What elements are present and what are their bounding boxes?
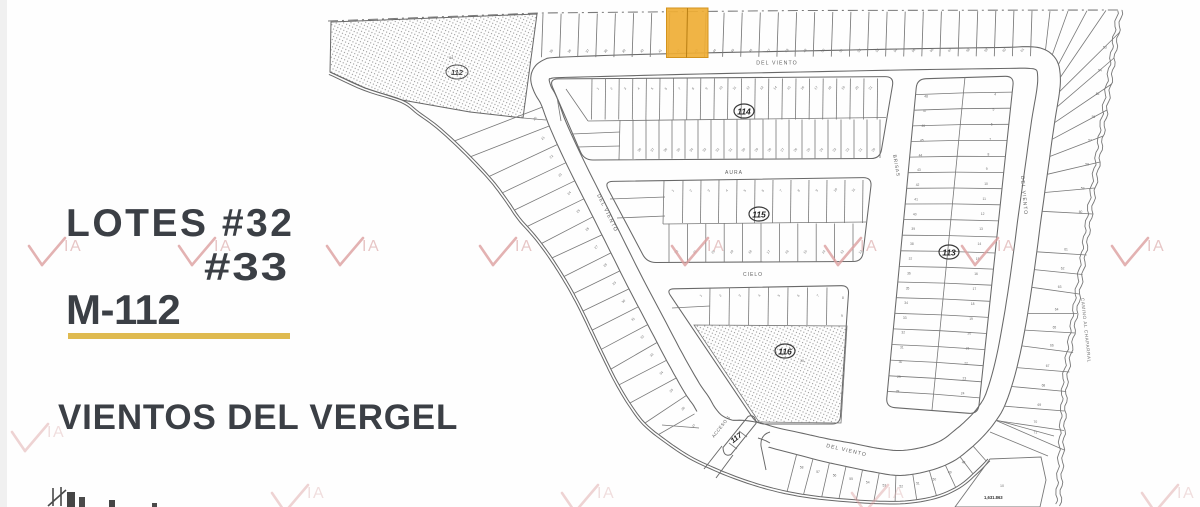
- svg-text:25: 25: [576, 208, 582, 214]
- svg-text:66: 66: [1050, 344, 1054, 348]
- svg-text:13: 13: [759, 85, 765, 91]
- svg-text:17: 17: [973, 287, 977, 291]
- svg-text:55: 55: [849, 477, 853, 481]
- svg-text:34: 34: [689, 147, 695, 153]
- svg-text:8: 8: [691, 87, 695, 91]
- svg-text:115: 115: [752, 210, 766, 220]
- svg-text:53: 53: [875, 48, 881, 54]
- svg-text:21: 21: [858, 147, 864, 153]
- svg-text:50: 50: [820, 48, 826, 54]
- svg-text:15: 15: [803, 249, 809, 255]
- svg-text:9: 9: [815, 189, 819, 193]
- svg-text:32: 32: [640, 334, 646, 340]
- svg-text:42: 42: [916, 183, 920, 187]
- svg-text:49: 49: [948, 470, 952, 474]
- svg-text:68: 68: [1042, 383, 1046, 387]
- svg-text:4: 4: [757, 294, 761, 298]
- svg-text:37: 37: [650, 147, 656, 153]
- svg-text:46: 46: [748, 48, 754, 54]
- svg-text:112: 112: [451, 68, 464, 77]
- svg-text:21: 21: [540, 135, 546, 141]
- svg-text:59: 59: [1081, 186, 1085, 190]
- svg-text:26: 26: [793, 147, 799, 153]
- svg-text:39: 39: [911, 227, 915, 231]
- svg-text:7: 7: [989, 137, 991, 141]
- svg-text:9: 9: [705, 87, 709, 91]
- svg-text:54: 54: [893, 48, 899, 54]
- svg-text:19: 19: [729, 249, 735, 255]
- svg-text:15: 15: [786, 85, 792, 91]
- svg-text:14: 14: [773, 85, 779, 91]
- svg-text:10: 10: [1000, 484, 1004, 488]
- svg-text:61: 61: [1020, 47, 1026, 53]
- svg-text:50: 50: [933, 477, 937, 481]
- svg-text:114: 114: [737, 107, 751, 117]
- svg-text:11: 11: [983, 197, 987, 201]
- svg-text:IA: IA: [597, 485, 615, 502]
- svg-text:38: 38: [603, 48, 609, 54]
- svg-text:DEL VIENTO: DEL VIENTO: [1019, 176, 1028, 216]
- svg-text:2: 2: [609, 87, 613, 91]
- svg-text:14: 14: [978, 242, 982, 246]
- svg-text:51: 51: [839, 48, 845, 54]
- svg-text:2: 2: [718, 294, 722, 298]
- svg-text:10: 10: [800, 359, 804, 363]
- svg-text:18: 18: [971, 302, 975, 306]
- svg-text:16: 16: [784, 249, 790, 255]
- svg-text:IA: IA: [1147, 238, 1165, 255]
- svg-text:26: 26: [585, 226, 591, 232]
- svg-text:6: 6: [761, 189, 765, 193]
- svg-text:7: 7: [816, 294, 820, 298]
- svg-text:4: 4: [637, 87, 641, 91]
- svg-text:28: 28: [603, 262, 609, 268]
- svg-text:69: 69: [1038, 403, 1042, 407]
- svg-text:113: 113: [942, 248, 956, 258]
- svg-text:8: 8: [842, 296, 844, 300]
- svg-text:84: 84: [449, 56, 453, 60]
- svg-text:67: 67: [1046, 364, 1050, 368]
- svg-text:4: 4: [725, 189, 729, 193]
- svg-text:48: 48: [962, 461, 966, 465]
- svg-text:DEL VIENTO: DEL VIENTO: [595, 193, 619, 233]
- svg-text:34: 34: [659, 370, 665, 376]
- svg-text:36: 36: [567, 48, 573, 54]
- svg-text:36: 36: [680, 406, 686, 412]
- svg-text:29: 29: [897, 375, 901, 379]
- svg-text:33: 33: [649, 352, 655, 358]
- svg-text:24: 24: [961, 392, 965, 396]
- svg-text:9: 9: [986, 167, 988, 171]
- svg-text:46: 46: [921, 124, 925, 128]
- svg-text:43: 43: [917, 168, 921, 172]
- svg-text:53: 53: [1103, 46, 1107, 50]
- svg-text:IA: IA: [362, 238, 380, 255]
- svg-text:32: 32: [715, 147, 721, 153]
- svg-text:63: 63: [1058, 285, 1062, 289]
- svg-text:27: 27: [780, 147, 786, 153]
- svg-text:2: 2: [689, 189, 693, 193]
- svg-text:24: 24: [566, 190, 572, 196]
- svg-text:7: 7: [779, 189, 783, 193]
- svg-text:IA: IA: [515, 238, 533, 255]
- svg-text:58: 58: [1085, 162, 1089, 166]
- svg-text:8: 8: [797, 189, 801, 193]
- svg-text:18: 18: [747, 249, 753, 255]
- svg-text:IA: IA: [307, 485, 325, 502]
- svg-text:40: 40: [913, 213, 917, 217]
- svg-text:6: 6: [796, 294, 800, 298]
- svg-text:8: 8: [988, 152, 990, 156]
- svg-text:36: 36: [663, 147, 669, 153]
- svg-text:11: 11: [851, 187, 856, 192]
- svg-text:60: 60: [1079, 210, 1083, 214]
- svg-text:1: 1: [596, 87, 600, 91]
- svg-text:3: 3: [738, 294, 742, 298]
- svg-text:30: 30: [621, 299, 627, 305]
- svg-text:34: 34: [904, 301, 908, 305]
- svg-text:71: 71: [1034, 431, 1038, 435]
- svg-text:5: 5: [743, 189, 747, 193]
- svg-text:9: 9: [841, 314, 843, 318]
- svg-text:70: 70: [1034, 420, 1038, 424]
- svg-text:20: 20: [968, 332, 972, 336]
- svg-text:62: 62: [1061, 266, 1065, 270]
- svg-text:30: 30: [741, 147, 747, 153]
- svg-text:10: 10: [833, 187, 839, 193]
- svg-text:1: 1: [699, 294, 703, 298]
- svg-text:19: 19: [969, 317, 973, 321]
- svg-text:36: 36: [907, 272, 911, 276]
- svg-text:7: 7: [677, 87, 681, 91]
- svg-text:CAMINO AL CHAPARRAL: CAMINO AL CHAPARRAL: [1080, 298, 1092, 363]
- svg-text:3: 3: [707, 189, 711, 193]
- svg-text:24: 24: [819, 147, 825, 153]
- svg-text:52: 52: [857, 48, 863, 54]
- svg-text:54: 54: [1098, 69, 1102, 73]
- svg-text:18: 18: [827, 85, 833, 91]
- svg-text:55: 55: [1096, 92, 1100, 96]
- svg-text:22: 22: [549, 154, 555, 160]
- svg-text:11: 11: [732, 85, 737, 90]
- svg-text:59: 59: [983, 47, 989, 53]
- svg-text:51: 51: [916, 482, 920, 486]
- svg-text:5: 5: [993, 107, 995, 111]
- svg-text:CIELO: CIELO: [743, 272, 763, 278]
- svg-text:64: 64: [1055, 308, 1059, 312]
- svg-text:25: 25: [806, 147, 812, 153]
- svg-text:16: 16: [800, 85, 806, 91]
- svg-text:20: 20: [871, 147, 877, 153]
- svg-text:IA: IA: [887, 485, 905, 502]
- svg-text:49: 49: [802, 48, 808, 54]
- svg-text:28: 28: [896, 390, 900, 394]
- svg-text:39: 39: [621, 48, 627, 54]
- svg-text:30: 30: [899, 360, 903, 364]
- svg-text:41: 41: [914, 198, 918, 202]
- svg-text:16: 16: [974, 272, 978, 276]
- svg-text:37: 37: [909, 257, 913, 261]
- svg-text:21: 21: [966, 347, 970, 351]
- svg-text:5: 5: [777, 294, 781, 298]
- svg-text:DEL VIENTO: DEL VIENTO: [756, 61, 798, 67]
- svg-text:28: 28: [767, 147, 773, 153]
- svg-text:48: 48: [784, 48, 790, 54]
- svg-text:35: 35: [669, 388, 675, 394]
- svg-text:12: 12: [745, 85, 751, 91]
- svg-text:57: 57: [1088, 139, 1092, 143]
- svg-text:29: 29: [754, 147, 760, 153]
- svg-text:5: 5: [650, 87, 654, 91]
- svg-text:IA: IA: [1177, 485, 1195, 502]
- svg-text:33: 33: [702, 147, 708, 153]
- svg-text:116: 116: [778, 347, 792, 357]
- svg-text:37: 37: [585, 48, 591, 54]
- svg-text:21: 21: [868, 85, 874, 91]
- svg-text:27: 27: [594, 244, 600, 250]
- svg-text:4: 4: [994, 93, 996, 97]
- svg-text:13: 13: [979, 227, 983, 231]
- svg-text:BRISAS: BRISAS: [891, 154, 901, 177]
- svg-text:23: 23: [963, 377, 967, 381]
- svg-text:57: 57: [816, 470, 820, 474]
- svg-text:35: 35: [906, 286, 910, 290]
- svg-text:AURA: AURA: [725, 170, 743, 176]
- svg-text:23: 23: [557, 172, 563, 178]
- svg-text:31: 31: [630, 316, 636, 322]
- svg-text:17: 17: [813, 85, 819, 91]
- svg-text:17: 17: [766, 249, 772, 255]
- svg-text:6: 6: [991, 122, 993, 126]
- svg-text:58: 58: [800, 466, 804, 470]
- svg-text:31: 31: [728, 147, 734, 153]
- svg-text:33: 33: [903, 316, 907, 320]
- svg-text:14: 14: [821, 249, 827, 255]
- svg-text:47: 47: [766, 48, 772, 54]
- svg-text:10: 10: [984, 182, 988, 186]
- svg-text:1: 1: [671, 189, 675, 193]
- svg-text:38: 38: [637, 147, 643, 153]
- svg-text:6: 6: [664, 87, 668, 91]
- svg-text:65: 65: [1053, 326, 1057, 330]
- svg-text:1,631.863: 1,631.863: [984, 495, 1003, 500]
- svg-text:19: 19: [841, 85, 847, 91]
- svg-text:60: 60: [1002, 47, 1008, 53]
- svg-text:13: 13: [839, 249, 845, 255]
- svg-text:48: 48: [924, 94, 928, 98]
- svg-text:54: 54: [866, 481, 870, 485]
- svg-text:3: 3: [623, 87, 627, 91]
- svg-text:IA: IA: [860, 238, 878, 255]
- svg-text:IA: IA: [997, 238, 1015, 255]
- svg-text:47: 47: [923, 109, 927, 113]
- svg-text:41: 41: [657, 48, 663, 54]
- svg-text:61: 61: [1064, 248, 1068, 252]
- svg-text:35: 35: [549, 48, 555, 54]
- svg-text:29: 29: [612, 281, 618, 287]
- svg-text:40: 40: [639, 48, 645, 54]
- svg-text:35: 35: [676, 147, 682, 153]
- svg-text:31: 31: [900, 345, 904, 349]
- svg-text:23: 23: [832, 147, 838, 153]
- svg-text:44: 44: [919, 153, 923, 157]
- svg-text:45: 45: [920, 139, 924, 143]
- svg-text:20: 20: [854, 85, 860, 91]
- svg-text:22: 22: [845, 147, 851, 153]
- svg-text:10: 10: [718, 85, 724, 91]
- svg-text:12: 12: [981, 212, 985, 216]
- svg-text:22: 22: [964, 362, 968, 366]
- svg-text:IA: IA: [707, 238, 725, 255]
- svg-text:56: 56: [1092, 115, 1096, 119]
- svg-text:38: 38: [910, 242, 914, 246]
- svg-text:32: 32: [901, 331, 905, 335]
- svg-text:56: 56: [833, 474, 837, 478]
